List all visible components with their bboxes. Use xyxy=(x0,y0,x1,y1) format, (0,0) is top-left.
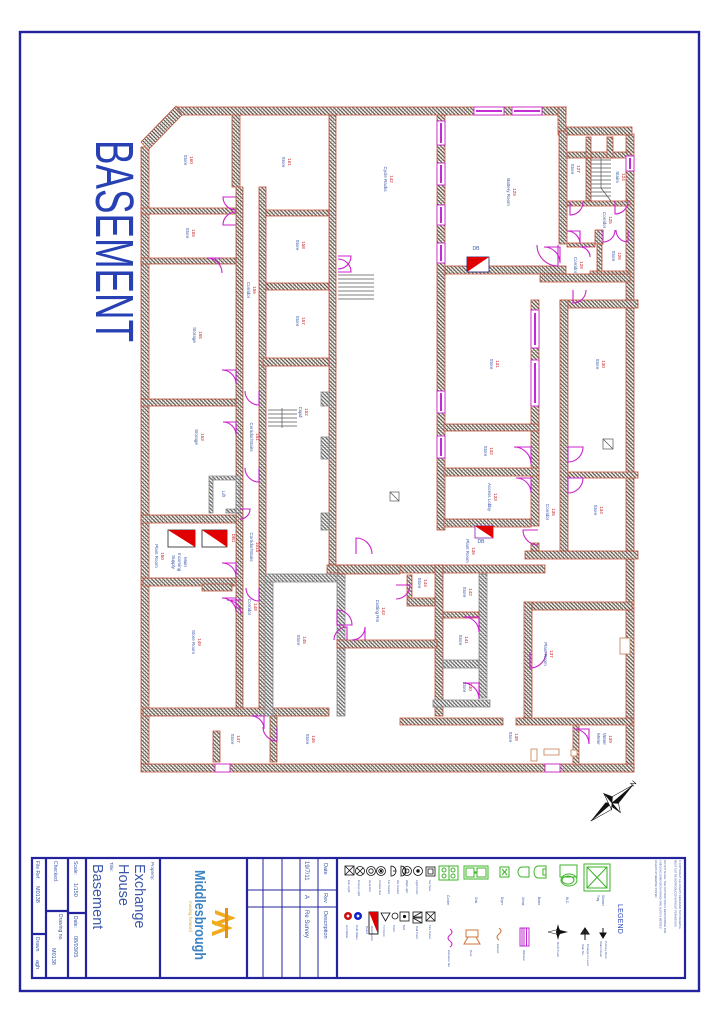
svg-text:129: 129 xyxy=(512,188,517,196)
svg-text:144: 144 xyxy=(423,579,428,587)
svg-text:145: 145 xyxy=(302,636,307,644)
svg-text:150: 150 xyxy=(160,552,165,560)
svg-text:131: 131 xyxy=(495,360,500,368)
svg-text:Store: Store xyxy=(295,240,300,251)
svg-text:North Point: North Point xyxy=(556,942,560,957)
svg-text:Distribution: Distribution xyxy=(370,926,374,941)
svg-text:Store: Store xyxy=(462,587,467,598)
svg-text:126: 126 xyxy=(617,252,622,260)
svg-text:Plant Room: Plant Room xyxy=(154,544,159,568)
svg-text:Store: Store xyxy=(230,734,235,745)
svg-text:136: 136 xyxy=(471,547,476,555)
svg-text:125: 125 xyxy=(608,216,613,224)
svg-text:DB: DB xyxy=(478,539,486,545)
svg-text:127: 127 xyxy=(576,165,581,173)
svg-text:agh: agh xyxy=(34,960,40,969)
svg-text:Rev: Rev xyxy=(322,893,328,903)
svg-text:Store: Store xyxy=(570,164,575,175)
svg-text:CHECKING DIMENSIONS WHICH ARE: CHECKING DIMENSIONS WHICH ARE ALSO IN ME… xyxy=(659,860,663,929)
svg-text:Store: Store xyxy=(305,734,310,745)
svg-text:146: 146 xyxy=(311,735,316,743)
svg-text:Change in Level: Change in Level xyxy=(586,944,590,966)
svg-text:Store: Store xyxy=(417,578,422,589)
svg-text:142: 142 xyxy=(468,588,473,596)
svg-text:W.C.: W.C. xyxy=(565,897,569,904)
svg-text:Corridor: Corridor xyxy=(602,212,607,229)
svg-text:Store: Store xyxy=(281,157,286,168)
svg-text:147: 147 xyxy=(236,735,241,743)
svg-text:132: 132 xyxy=(489,447,494,455)
svg-text:151: 151 xyxy=(255,433,260,441)
svg-text:Store: Store xyxy=(296,635,301,646)
svg-text:159: 159 xyxy=(191,229,196,237)
svg-text:Bell: Bell xyxy=(402,925,406,930)
svg-text:Checked.: Checked. xyxy=(52,861,58,882)
svg-text:Smoke Det: Smoke Det xyxy=(378,880,382,895)
svg-text:Date:: Date: xyxy=(72,916,78,928)
svg-text:Board: Board xyxy=(365,926,369,934)
svg-text:Property:: Property: xyxy=(150,862,155,880)
svg-text:Meter: Meter xyxy=(596,733,601,745)
svg-text:BASEMENT: BASEMENT xyxy=(84,140,144,342)
svg-text:Store: Store xyxy=(508,732,513,743)
svg-text:Storage: Storage xyxy=(192,327,197,343)
svg-text:Window: Window xyxy=(522,950,526,962)
svg-text:134: 134 xyxy=(599,506,604,514)
svg-text:Incoming: Incoming xyxy=(177,553,182,572)
svg-text:Scale:: Scale: xyxy=(72,861,78,875)
svg-text:Plant Room: Plant Room xyxy=(465,539,470,563)
svg-text:House: House xyxy=(115,864,131,906)
svg-text:2G Socket: 2G Socket xyxy=(396,880,400,894)
svg-text:M0138: M0138 xyxy=(50,948,56,965)
svg-text:138: 138 xyxy=(514,733,519,741)
svg-text:LEGEND: LEGEND xyxy=(616,904,623,934)
svg-text:Exchange: Exchange xyxy=(131,864,147,929)
svg-text:Store Room: Store Room xyxy=(191,630,196,654)
svg-text:Hot Water: Hot Water xyxy=(345,925,349,938)
svg-text:139: 139 xyxy=(608,735,613,743)
svg-text:128: 128 xyxy=(579,261,584,269)
svg-text:UNLESS OTHERWISE STATED.: UNLESS OTHERWISE STATED. xyxy=(654,860,658,898)
svg-text:Store: Store xyxy=(295,316,300,327)
svg-text:148: 148 xyxy=(253,603,258,611)
svg-text:Cutting Rm: Cutting Rm xyxy=(375,600,380,623)
svg-text:Corridor/Stairs: Corridor/Stairs xyxy=(249,532,254,562)
svg-text:moving forward: moving forward xyxy=(188,901,193,932)
svg-text:Store: Store xyxy=(483,446,488,457)
svg-text:156: 156 xyxy=(252,286,257,294)
svg-text:Store: Store xyxy=(595,359,600,370)
svg-text:153: 153 xyxy=(200,433,205,441)
svg-text:Store: Store xyxy=(462,682,467,693)
svg-text:Re Survey: Re Survey xyxy=(303,910,309,938)
svg-text:DO NOT SCALE. THE CONTRACTOR I: DO NOT SCALE. THE CONTRACTOR IS RESPONSI… xyxy=(663,860,667,933)
svg-text:140: 140 xyxy=(468,683,473,691)
svg-text:Shower: Shower xyxy=(601,895,605,907)
svg-text:130: 130 xyxy=(601,360,606,368)
svg-text:Drawn: Drawn xyxy=(34,937,40,952)
svg-text:MUST NOT BE REPRODUCED WITHOUT: MUST NOT BE REPRODUCED WITHOUT PERMISSIO… xyxy=(674,860,678,928)
svg-text:Cycle Racks: Cycle Racks xyxy=(383,166,388,192)
svg-text:Stair No.: Stair No. xyxy=(581,944,585,956)
svg-text:Dryer: Dryer xyxy=(500,897,504,906)
svg-text:Extractor fan: Extractor fan xyxy=(447,950,451,967)
svg-text:Corridor: Corridor xyxy=(545,504,550,521)
svg-text:124: 124 xyxy=(621,173,626,181)
svg-text:Sw Spur: Sw Spur xyxy=(428,880,432,891)
svg-text:Description: Description xyxy=(322,911,328,939)
svg-text:143: 143 xyxy=(381,607,386,615)
svg-text:135: 135 xyxy=(551,508,556,516)
svg-text:155: 155 xyxy=(198,331,203,339)
svg-text:Call Point: Call Point xyxy=(415,926,419,939)
svg-text:© COPYRIGHT. ALL RIGHTS RESER: © COPYRIGHT. ALL RIGHTS RESERVED THIS DR… xyxy=(678,860,682,929)
svg-text:Date: Date xyxy=(322,863,328,875)
svg-text:DB1: DB1 xyxy=(231,534,236,543)
svg-text:Door: Door xyxy=(469,950,473,957)
svg-text:151a: 151a xyxy=(255,542,260,553)
svg-text:Cupd: Cupd xyxy=(298,407,303,418)
svg-text:152: 152 xyxy=(304,408,309,416)
svg-text:Title:: Title: xyxy=(109,862,114,872)
svg-text:Store: Store xyxy=(489,359,494,370)
svg-text:Store: Store xyxy=(458,635,463,646)
svg-text:Main: Main xyxy=(183,557,188,567)
svg-text:Store: Store xyxy=(593,505,598,516)
svg-text:DB: DB xyxy=(473,246,481,252)
svg-text:Extract: Extract xyxy=(496,944,500,954)
svg-text:Cooker: Cooker xyxy=(446,895,450,906)
svg-text:160: 160 xyxy=(189,156,194,164)
svg-text:Tray: Tray xyxy=(596,895,600,902)
svg-text:161: 161 xyxy=(287,158,292,166)
svg-text:Stairs Down: Stairs Down xyxy=(599,941,603,958)
svg-text:A: A xyxy=(303,895,309,899)
svg-text:Exit Light: Exit Light xyxy=(347,880,351,893)
svg-text:Heat Det: Heat Det xyxy=(368,880,372,892)
svg-text:Store: Store xyxy=(611,251,616,262)
svg-text:Point: Point xyxy=(392,925,396,932)
svg-text:Store: Store xyxy=(185,228,190,239)
svg-text:TV Point: TV Point xyxy=(382,925,386,937)
svg-text:Lift: Lift xyxy=(221,491,226,498)
svg-text:Light Point: Light Point xyxy=(415,880,419,894)
svg-text:157: 157 xyxy=(301,317,306,325)
svg-text:Basement: Basement xyxy=(89,864,105,929)
svg-text:Store: Store xyxy=(183,155,188,166)
svg-text:Drawing no.: Drawing no. xyxy=(57,914,63,941)
svg-text:Cold Water: Cold Water xyxy=(355,925,359,940)
svg-text:Corridor: Corridor xyxy=(246,282,251,299)
svg-text:Stairs: Stairs xyxy=(615,171,620,183)
svg-text:Basin: Basin xyxy=(537,897,541,905)
svg-text:1/150: 1/150 xyxy=(72,883,78,897)
svg-text:Urinal: Urinal xyxy=(521,897,525,906)
svg-text:Water: Water xyxy=(602,733,607,745)
svg-text:141: 141 xyxy=(464,636,469,644)
svg-text:Wall Light: Wall Light xyxy=(405,880,409,893)
svg-text:142: 142 xyxy=(389,175,394,183)
svg-text:08/03/05: 08/03/05 xyxy=(72,936,78,957)
svg-text:Supply: Supply xyxy=(171,555,176,570)
svg-text:Plant Room: Plant Room xyxy=(543,642,548,666)
svg-text:137: 137 xyxy=(549,650,554,658)
svg-text:19/7/11: 19/7/11 xyxy=(303,861,309,881)
svg-text:Corridor: Corridor xyxy=(573,257,578,274)
svg-text:Storage: Storage xyxy=(194,429,199,445)
svg-text:133: 133 xyxy=(493,493,498,501)
svg-text:Emerg Light: Emerg Light xyxy=(357,880,361,896)
svg-text:Fire Panel: Fire Panel xyxy=(428,925,432,939)
svg-text:File Ref.: File Ref. xyxy=(34,861,40,880)
svg-text:Corridor/Stairs: Corridor/Stairs xyxy=(249,422,254,452)
svg-text:Sink: Sink xyxy=(474,897,478,904)
svg-text:Primary Rout: Primary Rout xyxy=(604,941,608,959)
svg-text:149: 149 xyxy=(197,638,202,646)
svg-text:Access Lobby: Access Lobby xyxy=(487,483,492,512)
svg-text:1G Socket: 1G Socket xyxy=(387,880,391,894)
svg-text:158: 158 xyxy=(301,241,306,249)
svg-text:Battery Room: Battery Room xyxy=(506,178,511,206)
svg-text:Corridor: Corridor xyxy=(247,599,252,616)
svg-text:M0138: M0138 xyxy=(34,886,40,903)
